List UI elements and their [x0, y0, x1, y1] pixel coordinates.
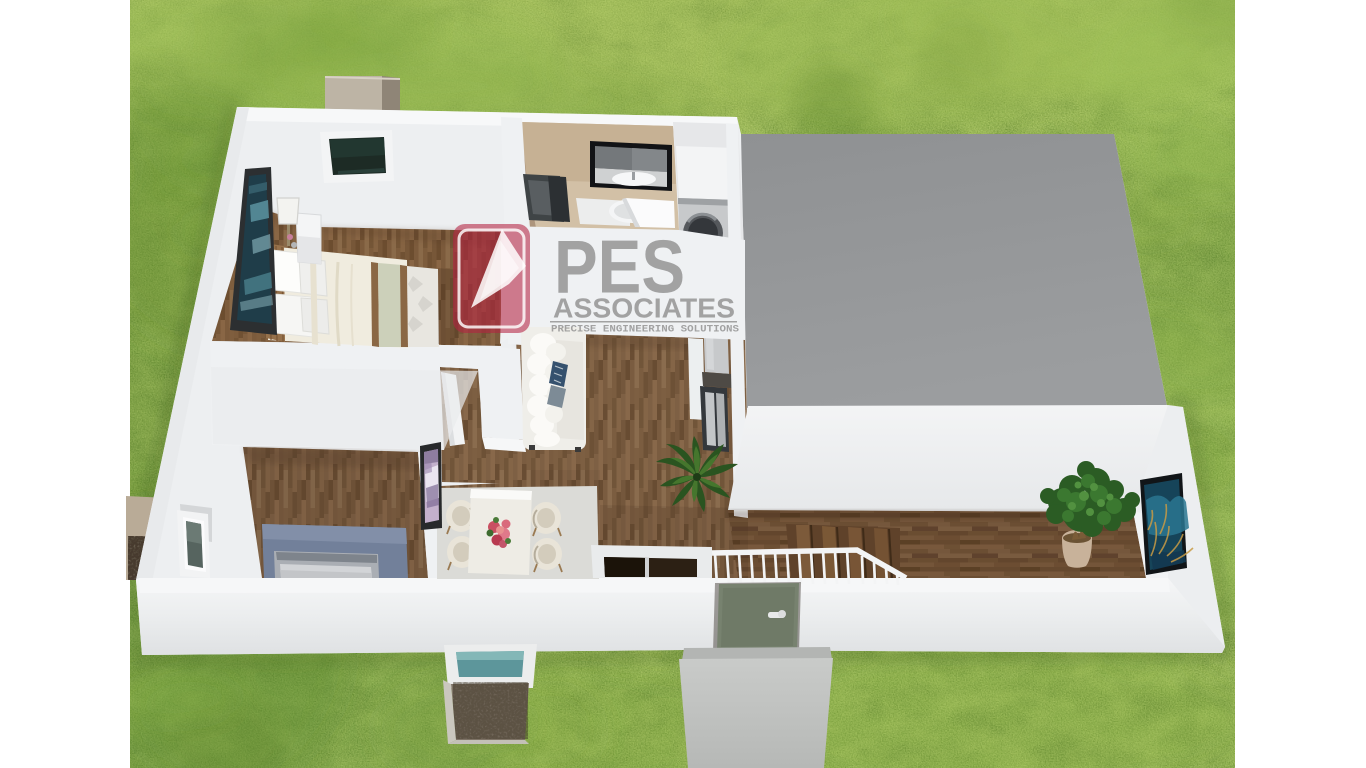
svg-text:ASSOCIATES: ASSOCIATES	[553, 293, 735, 324]
svg-text:PRECISE ENGINEERING SOLUTIONS: PRECISE ENGINEERING SOLUTIONS	[551, 325, 739, 336]
